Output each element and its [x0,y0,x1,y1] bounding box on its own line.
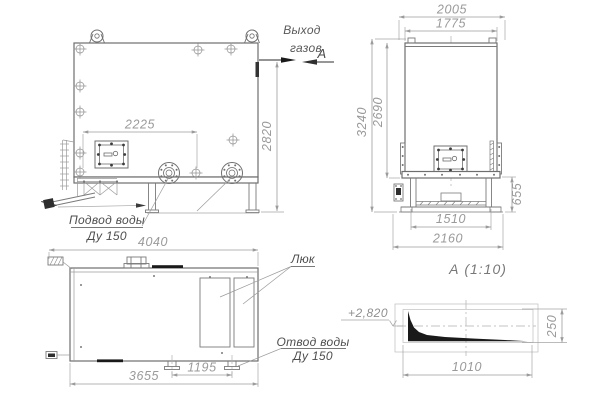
inlet-pipe-stub [41,193,146,209]
section-view: А (1:10) +2,820 250 1010 [341,261,567,378]
dim-2005-label: 2005 [436,3,467,17]
water-outlet-label-line2: Ду 150 [291,349,333,363]
side-inlet-flange [394,184,403,201]
dimension-4040: 4040 [49,235,258,266]
gas-outlet-flange [256,62,260,77]
dim-1010-label: 1010 [452,360,482,374]
water-outlet-label-line1: Отвод воды [276,335,349,349]
drawing-canvas: Выход газов А 2225 2820 Подвод воды Ду 1 [0,0,600,400]
water-inlet-label-line2: Ду 150 [85,229,127,243]
boiler-technical-drawing: Выход газов А 2225 2820 Подвод воды Ду 1 [0,0,600,400]
dimension-1195: 1195 [172,361,232,379]
support-legs-front [146,183,260,213]
section-title: А (1:10) [448,261,507,277]
dim-655-label: 655 [510,183,524,206]
dimension-2820: 2820 [260,62,284,212]
dim-250-label: 250 [545,315,559,339]
ladder-plan [48,257,72,269]
leader-arrow [136,203,146,208]
chimney-plan [124,257,149,268]
gas-outlet-label-line1: Выход [283,23,321,37]
lifting-lug [90,30,105,43]
front-view: Выход газов А 2225 2820 Подвод воды Ду 1 [41,23,334,243]
dimension-2690: 2690 [371,43,400,178]
bottom-band-side [402,172,500,179]
level-mark: +2,820 [341,306,403,326]
dimension-655: 655 [502,177,524,212]
level-mark-label: +2,820 [348,306,388,320]
dim-2225-label: 2225 [124,118,155,132]
grate-strip-bottom [97,359,123,362]
dim-2160-label: 2160 [432,232,463,246]
lug-tab [408,38,415,43]
dimension-1010: 1010 [403,345,532,378]
dim-3655-label: 3655 [129,369,159,383]
hatch-label: Люк [290,252,316,266]
inlet-pipe-plan [46,352,70,359]
dim-2690-label: 2690 [371,97,385,128]
dim-1775-label: 1775 [436,17,466,31]
plan-view: 4040 3655 1195 Люк Отвод воды Ду 150 [46,235,350,387]
water-inlet-label-line1: Подвод воды [69,213,145,227]
gas-outlet-arrow [259,57,296,63]
dim-4040-label: 4040 [138,235,168,249]
boiler-body-side [405,43,497,172]
dim-3240-label: 3240 [355,107,369,137]
boiler-body-front [74,43,258,177]
dim-1195-label: 1195 [187,361,216,375]
lug-tab [489,38,496,43]
section-cut-label: А [317,46,327,61]
grate-strip-top [152,265,183,268]
ladder [60,140,74,190]
dim-1510-label: 1510 [436,212,466,226]
section-outer-frame [395,304,538,352]
dim-2820-label: 2820 [260,121,274,152]
side-view: 2005 1775 3240 2690 655 [355,3,524,251]
lifting-lug [245,30,260,43]
base-frame-side [399,178,503,212]
